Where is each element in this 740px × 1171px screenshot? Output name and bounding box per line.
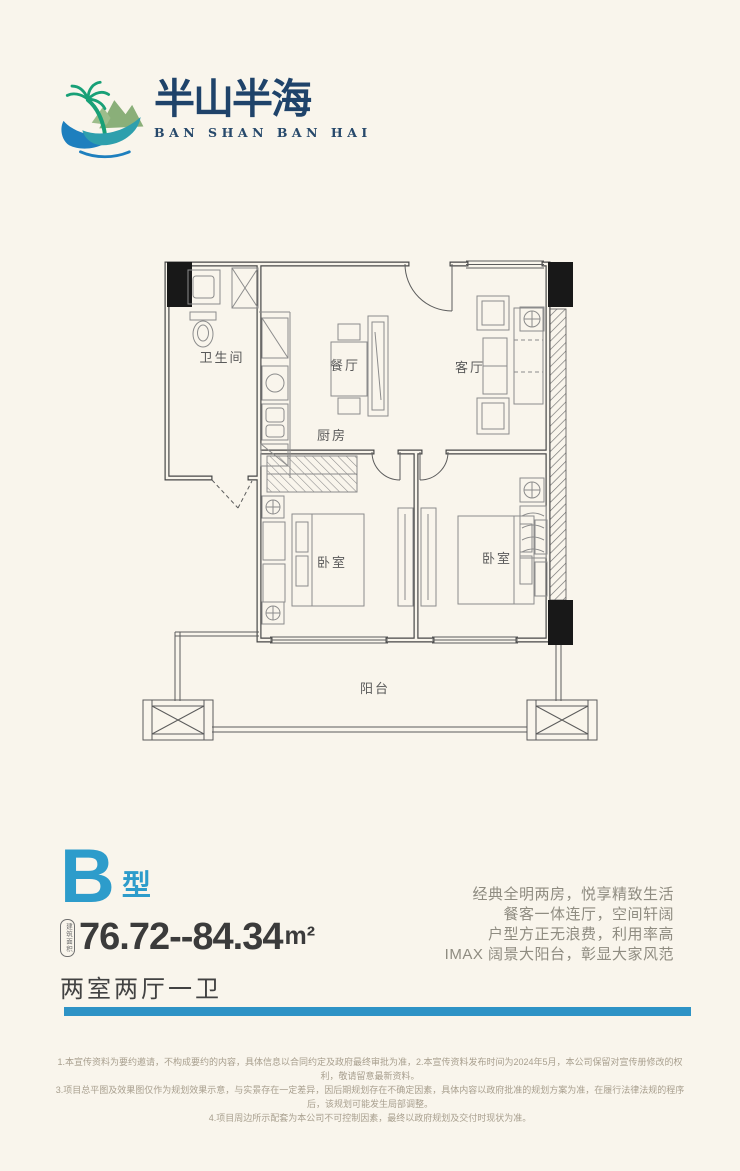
floor-plan: 卫生间 餐厅 客厅 厨房 卧室 卧室 阳台 [130,245,620,755]
selling-point: IMAX 阔景大阳台，彰显大家风范 [445,945,674,965]
walls [167,264,548,640]
room-label-living: 客厅 [455,360,485,375]
selling-point: 经典全明两房，悦享精致生活 [445,885,674,905]
room-label-kitchen: 厨房 [317,428,347,443]
room-label-bathroom: 卫生间 [199,350,244,365]
bedroom2-furniture [398,508,547,606]
unit-layout: 两室两厅一卫 [60,969,315,1004]
bedroom1-furniture [262,456,364,624]
selling-point: 户型方正无浪费，利用率高 [445,925,674,945]
room-label-balcony: 阳台 [360,681,390,696]
room-label-bedroom1: 卧室 [317,555,347,570]
area-label-capsule: 建筑面积 [60,919,75,957]
divider-rule [64,1007,691,1016]
wave-underline-icon [80,152,129,157]
unit-type: B 型 [60,836,315,908]
selling-point: 餐客一体连厅，空间轩阔 [445,905,674,925]
brand-logo-icon [56,74,150,162]
room-label-dining: 餐厅 [330,358,360,373]
disclaimer-line: 3.项目总平图及效果图仅作为规划效果示意，与实景存在一定差异，因后期规划存在不确… [55,1083,685,1111]
bathroom-fixtures [188,268,258,347]
disclaimer-line: 1.本宣传资料为要约邀请，不构成要约的内容，具体信息以合同约定及政府最终审批为准… [55,1055,685,1083]
unit-area: 建筑面积 76.72--84.34 m² [60,916,315,959]
brand-name-cn: 半山半海 [154,78,372,121]
flyer-page: 半山半海 BAN SHAN BAN HAI [0,0,740,1171]
area-label: 建筑面积 [63,923,73,953]
disclaimer-line: 4.项目周边所示配套为本公司不可控制因素，最终以政府规划及交付时现状为准。 [55,1111,685,1125]
area-unit: m² [285,922,316,951]
unit-info: B 型 建筑面积 76.72--84.34 m² 两室两厅一卫 [60,836,315,1004]
living-furniture [477,296,546,558]
selling-points: 经典全明两房，悦享精致生活 餐客一体连厅，空间轩阔 户型方正无浪费，利用率高 I… [445,885,674,965]
room-label-bedroom2: 卧室 [482,551,512,566]
disclaimer: 1.本宣传资料为要约邀请，不构成要约的内容，具体信息以合同约定及政府最终审批为准… [55,1055,685,1125]
unit-type-suffix: 型 [122,862,151,904]
area-value: 76.72--84.34 [79,916,283,959]
brand-name-en: BAN SHAN BAN HAI [154,125,372,140]
unit-type-letter: B [60,846,115,908]
brand-logo: 半山半海 BAN SHAN BAN HAI [56,74,372,162]
